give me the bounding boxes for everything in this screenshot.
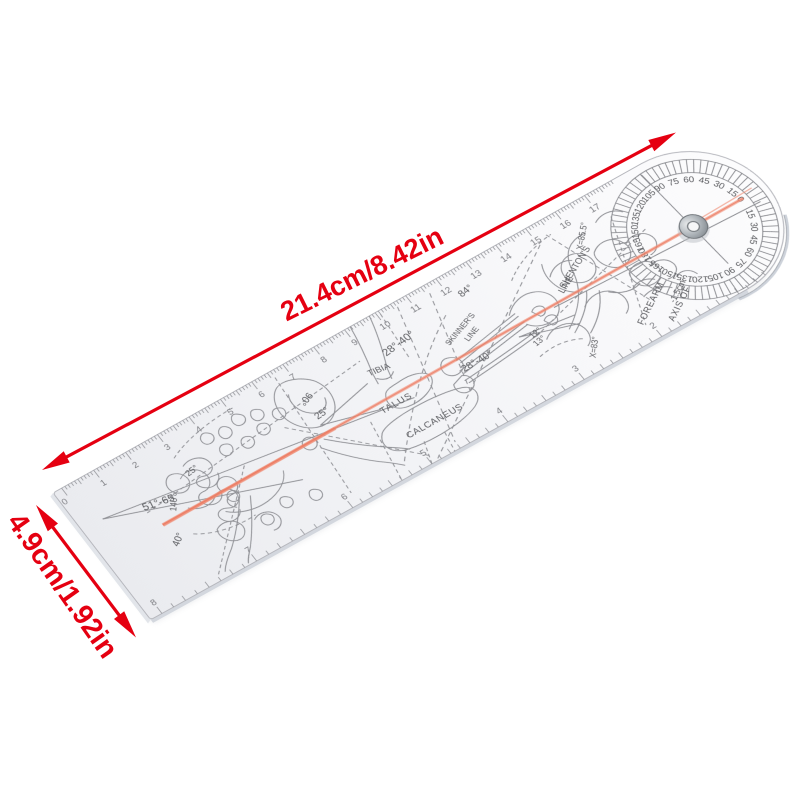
svg-text:21.4cm/8.42in: 21.4cm/8.42in <box>275 220 448 327</box>
svg-text:4.9cm/1.92in: 4.9cm/1.92in <box>1 507 124 664</box>
